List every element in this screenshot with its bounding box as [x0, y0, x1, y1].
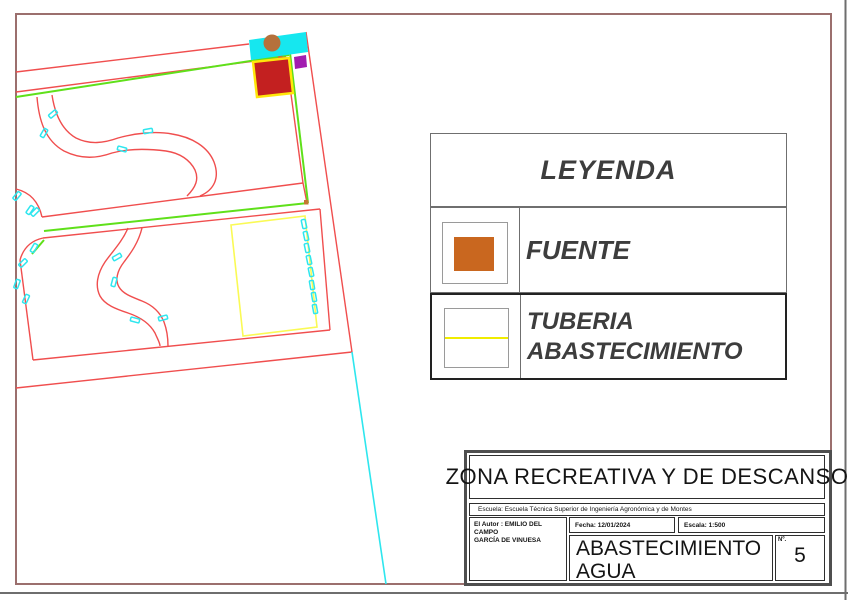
benches: [13, 110, 318, 324]
sheet-number-label: Nº.: [778, 537, 786, 543]
legend-item-fuente: FUENTE: [430, 207, 787, 293]
sheet-title-line2: AGUA: [576, 560, 772, 583]
tuberia-line-icon: [445, 337, 508, 339]
tuberia-symbol-cell: [432, 295, 521, 378]
scale-cell: Escala: 1:500: [678, 517, 825, 533]
school-label: Escuela: Escuela Técnica Superior de Ing…: [478, 506, 692, 513]
purple-square: [294, 55, 307, 69]
building-square: [253, 58, 293, 97]
walkway-parcel-2: [97, 228, 168, 346]
pipe-node-icon: [304, 200, 309, 205]
legend-title: LEYENDA: [540, 155, 676, 186]
project-title-cell: ZONA RECREATIVA Y DE DESCANSO: [469, 455, 825, 499]
sheet-title-cell: ABASTECIMIENTO AGUA: [569, 535, 773, 581]
author-cell: El Autor : EMILIO DEL CAMPO GARCÍA DE VI…: [469, 517, 567, 581]
tuberia-label-line2: ABASTECIMIENTO: [527, 337, 785, 367]
walkway-parcel-1: [37, 95, 216, 196]
tuberia-symbol-box: [444, 308, 509, 368]
tuberia-label-line1: TUBERIA: [527, 307, 785, 337]
sheet-number-cell: Nº. 5: [775, 535, 825, 581]
fuente-label: FUENTE: [526, 235, 786, 266]
legend-item-tuberia: TUBERIA ABASTECIMIENTO: [430, 293, 787, 380]
sheet-title-line1: ABASTECIMIENTO: [576, 537, 772, 560]
water-supply-line: [352, 352, 386, 584]
legend: LEYENDA FUENTE TUBERIA ABASTECIMIENTO: [430, 133, 787, 378]
fuente-square-icon: [454, 237, 494, 271]
parcel-outlines: [16, 32, 352, 388]
author-line2: GARCÍA DE VINUESA: [474, 537, 566, 545]
fuente-symbol-cell: [431, 208, 520, 292]
fountain-circle: [264, 35, 281, 52]
date-label: Fecha: 12/01/2024: [575, 522, 630, 529]
plot-sheet: LEYENDA FUENTE TUBERIA ABASTECIMIENTO: [0, 0, 848, 600]
author-line1: El Autor : EMILIO DEL CAMPO: [474, 521, 566, 537]
legend-title-row: LEYENDA: [430, 133, 787, 207]
scale-label: Escala: 1:500: [684, 522, 725, 529]
sheet-number: 5: [776, 544, 824, 568]
project-title: ZONA RECREATIVA Y DE DESCANSO: [446, 464, 848, 490]
fuente-symbol-box: [442, 222, 508, 284]
title-block: ZONA RECREATIVA Y DE DESCANSO Escuela: E…: [464, 450, 832, 586]
school-cell: Escuela: Escuela Técnica Superior de Ing…: [469, 503, 825, 516]
date-cell: Fecha: 12/01/2024: [569, 517, 675, 533]
